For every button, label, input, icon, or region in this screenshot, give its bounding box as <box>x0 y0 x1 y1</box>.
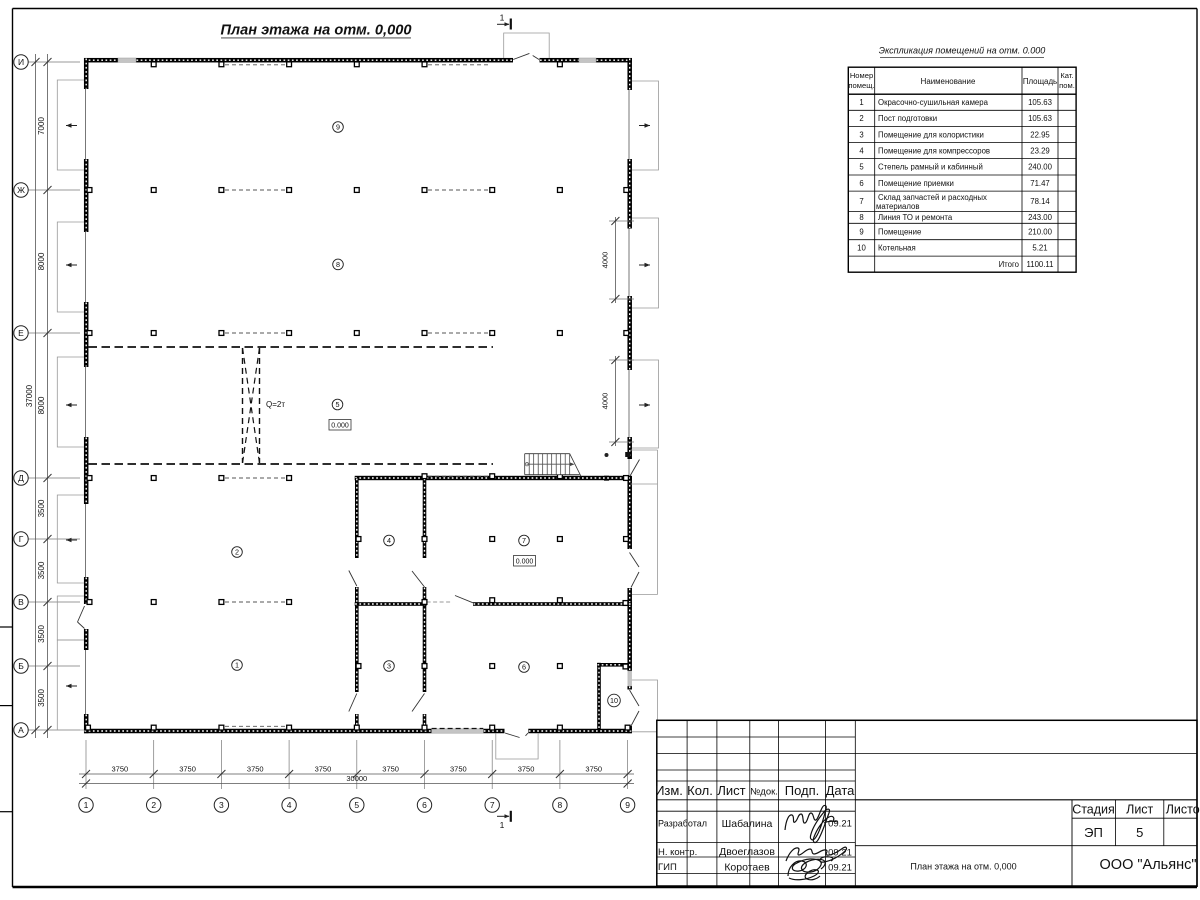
svg-text:6: 6 <box>422 800 427 810</box>
svg-text:8: 8 <box>558 800 563 810</box>
svg-text:План этажа на отм. 0,000: План этажа на отм. 0,000 <box>910 862 1016 872</box>
svg-text:0.000: 0.000 <box>331 422 349 429</box>
svg-text:Разработал: Разработал <box>658 819 707 829</box>
svg-text:3500: 3500 <box>37 561 46 579</box>
svg-text:3: 3 <box>219 800 224 810</box>
svg-text:Линия ТО и ремонта: Линия ТО и ремонта <box>878 213 953 222</box>
svg-text:5: 5 <box>1136 825 1143 840</box>
svg-text:ЭП: ЭП <box>1084 825 1103 840</box>
svg-text:А: А <box>18 725 24 735</box>
svg-text:4: 4 <box>387 536 391 545</box>
svg-text:3750: 3750 <box>518 764 535 773</box>
svg-text:1100.11: 1100.11 <box>1026 260 1053 269</box>
svg-text:помещ.: помещ. <box>848 81 874 90</box>
svg-text:105.63: 105.63 <box>1028 114 1052 123</box>
svg-text:Б: Б <box>18 661 24 671</box>
svg-text:№док.: №док. <box>750 787 778 798</box>
svg-text:7: 7 <box>859 197 863 206</box>
svg-text:5: 5 <box>354 800 359 810</box>
svg-text:243.00: 243.00 <box>1028 213 1053 222</box>
svg-text:37000: 37000 <box>25 384 34 407</box>
svg-text:4: 4 <box>287 800 292 810</box>
svg-text:Коротаев: Коротаев <box>724 862 770 874</box>
svg-text:3750: 3750 <box>450 764 467 773</box>
svg-text:3: 3 <box>387 662 391 671</box>
svg-text:Кат.: Кат. <box>1060 71 1073 80</box>
svg-text:1: 1 <box>500 820 505 830</box>
svg-text:Площадь: Площадь <box>1023 77 1057 86</box>
svg-text:Окрасочно-сушильная камера: Окрасочно-сушильная камера <box>878 98 989 107</box>
svg-text:Стадия: Стадия <box>1072 803 1115 817</box>
svg-text:Е: Е <box>18 328 24 338</box>
svg-text:3750: 3750 <box>585 764 602 773</box>
svg-text:3500: 3500 <box>37 499 46 517</box>
svg-text:4000: 4000 <box>601 393 610 410</box>
svg-text:Лист: Лист <box>717 783 745 798</box>
svg-text:10: 10 <box>857 244 866 253</box>
svg-text:3750: 3750 <box>382 764 399 773</box>
svg-text:В: В <box>18 597 24 607</box>
svg-text:1: 1 <box>235 661 239 670</box>
svg-text:3500: 3500 <box>37 689 46 707</box>
svg-text:3750: 3750 <box>315 764 332 773</box>
svg-text:Лист: Лист <box>1126 803 1153 817</box>
svg-text:23.29: 23.29 <box>1030 146 1050 155</box>
svg-text:78.14: 78.14 <box>1030 197 1050 206</box>
svg-text:Q=2т: Q=2т <box>266 400 285 409</box>
svg-text:ООО "Альянс": ООО "Альянс" <box>1100 857 1197 873</box>
svg-text:3750: 3750 <box>247 764 264 773</box>
svg-text:5.21: 5.21 <box>1032 244 1047 253</box>
svg-text:210.00: 210.00 <box>1028 227 1053 236</box>
svg-text:8000: 8000 <box>37 396 46 414</box>
svg-text:2: 2 <box>859 114 863 123</box>
svg-text:1: 1 <box>859 98 863 107</box>
svg-text:105.63: 105.63 <box>1028 98 1052 107</box>
svg-text:Подп.: Подп. <box>785 783 820 798</box>
svg-text:Двоеглазов: Двоеглазов <box>719 846 775 858</box>
svg-text:Г: Г <box>19 534 24 544</box>
svg-text:Котельная: Котельная <box>878 244 916 253</box>
svg-text:Экспликация помещений на отм.: Экспликация помещений на отм. 0.000 <box>879 46 1045 56</box>
svg-text:0.000: 0.000 <box>516 558 534 565</box>
svg-text:09.21: 09.21 <box>828 862 852 873</box>
svg-text:1: 1 <box>84 800 89 810</box>
svg-text:Кол.: Кол. <box>687 783 713 798</box>
svg-text:Дата: Дата <box>826 783 856 798</box>
svg-text:Помещение приемки: Помещение приемки <box>878 179 954 188</box>
svg-text:Помещение для компрессоров: Помещение для компрессоров <box>878 146 990 155</box>
svg-text:материалов: материалов <box>876 202 920 211</box>
svg-text:09.21: 09.21 <box>828 847 852 858</box>
svg-text:Наименование: Наименование <box>921 77 976 86</box>
svg-text:7000: 7000 <box>37 117 46 135</box>
svg-text:Н. контр.: Н. контр. <box>658 847 697 858</box>
svg-text:5: 5 <box>859 163 864 172</box>
svg-text:3750: 3750 <box>112 764 129 773</box>
svg-text:1: 1 <box>500 13 505 23</box>
svg-text:8000: 8000 <box>37 252 46 270</box>
svg-text:8: 8 <box>336 260 340 269</box>
svg-text:8: 8 <box>859 213 863 222</box>
svg-text:3750: 3750 <box>179 764 196 773</box>
svg-text:7: 7 <box>522 536 526 545</box>
svg-text:7: 7 <box>490 800 495 810</box>
svg-text:Листов: Листов <box>1166 803 1200 817</box>
svg-text:6: 6 <box>859 179 863 188</box>
svg-text:6: 6 <box>522 663 526 672</box>
svg-text:9: 9 <box>859 227 863 236</box>
svg-text:Номер: Номер <box>850 71 873 80</box>
svg-text:22.95: 22.95 <box>1030 130 1050 139</box>
svg-text:ГИП: ГИП <box>658 862 677 873</box>
svg-text:Итого: Итого <box>999 260 1020 269</box>
svg-text:Д: Д <box>18 473 24 483</box>
svg-text:5: 5 <box>336 400 340 409</box>
svg-text:9: 9 <box>625 800 630 810</box>
svg-text:09.21: 09.21 <box>828 819 852 830</box>
svg-text:Помещение: Помещение <box>878 227 921 236</box>
svg-text:И: И <box>18 57 24 67</box>
svg-text:Степель рамный и кабинный: Степель рамный и кабинный <box>878 163 983 172</box>
svg-text:3: 3 <box>859 130 863 139</box>
svg-text:2: 2 <box>235 548 239 557</box>
svg-text:Помещение для колористики: Помещение для колористики <box>878 130 984 139</box>
svg-text:Склад запчастей и расходных: Склад запчастей и расходных <box>878 193 987 202</box>
svg-text:пом.: пом. <box>1059 81 1075 90</box>
svg-text:2: 2 <box>151 800 156 810</box>
svg-text:240.00: 240.00 <box>1028 163 1053 172</box>
svg-text:30000: 30000 <box>346 774 367 783</box>
svg-text:9: 9 <box>336 123 340 132</box>
svg-text:3500: 3500 <box>37 625 46 643</box>
svg-text:10: 10 <box>610 696 618 705</box>
svg-text:Изм.: Изм. <box>655 783 683 798</box>
svg-text:71.47: 71.47 <box>1030 179 1050 188</box>
svg-text:Ж: Ж <box>17 185 25 195</box>
svg-text:Шабалина: Шабалина <box>722 818 773 830</box>
svg-text:4: 4 <box>859 146 864 155</box>
svg-text:Пост подготовки: Пост подготовки <box>878 114 937 123</box>
svg-text:План этажа на отм. 0,000: План этажа на отм. 0,000 <box>221 22 412 38</box>
svg-text:4000: 4000 <box>601 252 610 269</box>
